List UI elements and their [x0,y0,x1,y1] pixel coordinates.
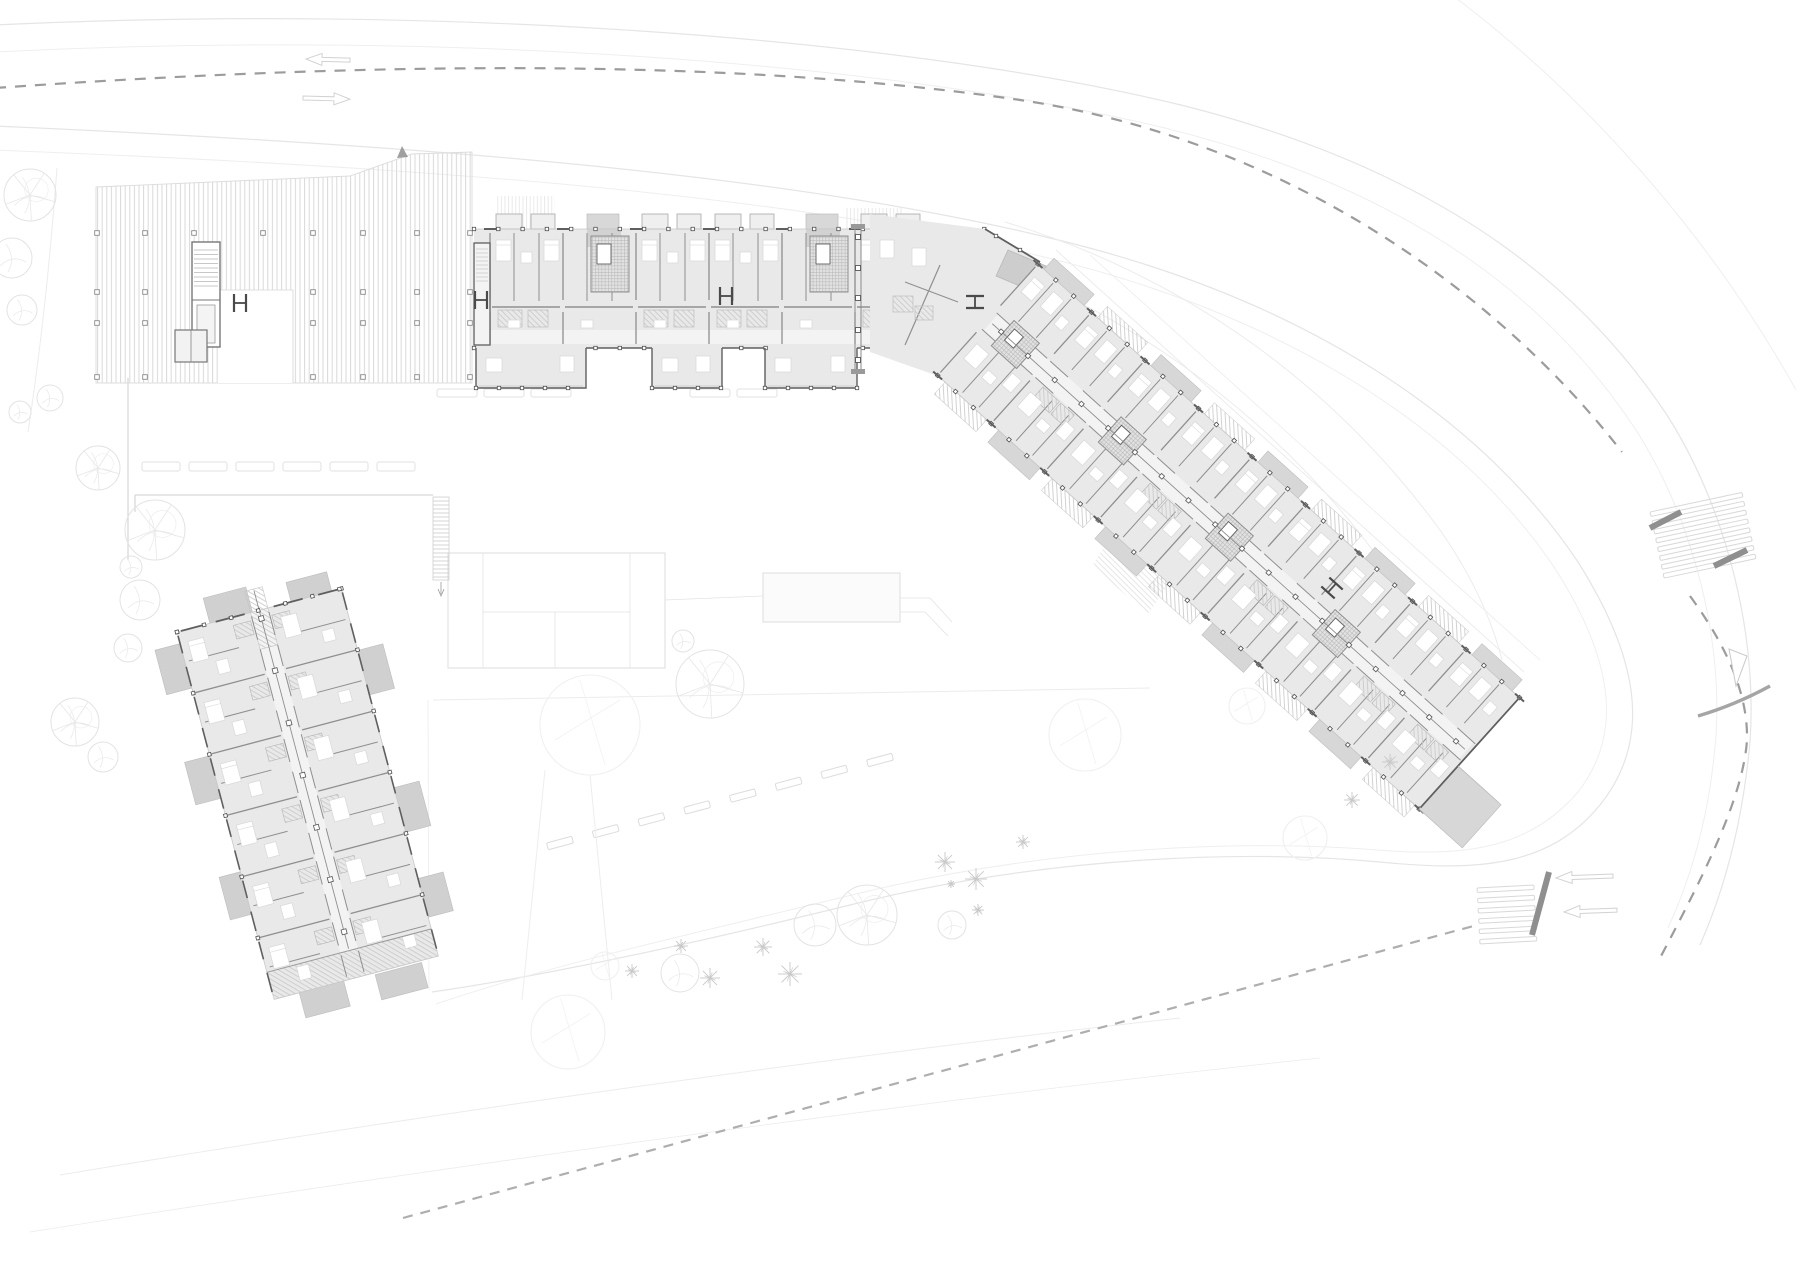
balcony [496,214,522,229]
terrain-line [60,1018,1180,1175]
column-pier [667,227,670,230]
roof-drain-marker [397,146,408,158]
furniture [880,240,894,258]
shrub [965,868,987,890]
drawing-shape [17,404,20,419]
garden-path [665,596,763,600]
colonnade-pier [856,328,861,333]
pergola-column [361,321,366,326]
furniture [544,240,559,261]
balcony [642,214,668,229]
column-pier [283,601,287,605]
parking-bay [690,389,730,397]
column-pier [740,346,743,349]
column-pier [566,386,569,389]
column-pier [594,346,597,349]
column-pier [642,346,645,349]
tree-branch [710,655,729,684]
column-pier [372,709,376,713]
tree-branch [678,684,710,696]
drawing-shape [124,567,138,571]
shrub [754,938,772,956]
pergola-column [415,375,420,380]
column-pier [474,386,477,389]
tree-branch [689,658,710,684]
tree-branch [710,684,743,693]
column-pier [207,752,211,756]
tree-faint [1229,688,1265,724]
site-plan-page [0,0,1800,1273]
landscape-faint [522,675,1327,1069]
zebra-stripe [1479,916,1536,923]
shrub [947,880,955,888]
drawing-shape [782,966,790,974]
tree [0,238,32,278]
pergola-column [361,375,366,380]
zebra-crossing [1650,492,1756,578]
balcony [750,214,774,229]
traffic-direction-arrow [306,53,350,66]
spine-pier [313,824,319,830]
column-pier [715,227,718,230]
furniture [521,252,532,263]
terrace-deck [763,573,900,622]
parking-bay [867,753,894,766]
column-pier [594,227,597,230]
column-pier [175,630,179,634]
shrub [674,939,688,953]
pergola-column [95,290,100,295]
drawing-shape [821,765,848,778]
spine-pier [300,772,306,778]
tree-branch [98,468,119,474]
column-pier [618,227,621,230]
terrain-line [433,688,1150,700]
tree-branch [848,892,867,915]
furniture [496,240,511,261]
drawing-shape [134,586,140,614]
zebra-stripe [1478,895,1535,902]
column-pier [256,608,260,612]
drawing-shape [669,974,694,981]
balcony [531,214,555,229]
furniture [662,358,678,372]
furniture [370,812,385,827]
sports-court [448,553,665,668]
column-pier [240,875,244,879]
shrub [1344,792,1360,808]
column-pier [355,648,359,652]
shrub [1382,754,1398,770]
column-pier [388,770,392,774]
furniture [508,320,520,328]
shrub [625,964,639,978]
pergola-column [311,321,316,326]
furniture [740,252,751,263]
pergola-canopy [95,146,473,383]
pergola-column [468,375,473,380]
pergola-column [311,290,316,295]
spine-pier [327,876,333,882]
drawing-shape [137,531,176,542]
site-plan-canvas [0,0,1800,1273]
parking-bay [142,462,180,471]
tree-branch [14,175,30,195]
garden-path [900,598,952,622]
parking-bay [236,462,274,471]
pergola-column [468,290,473,295]
drawing-shape [790,974,798,982]
pergola-column [95,231,100,236]
tree-faint [591,952,619,980]
column-pier [256,936,260,940]
tree-branch [30,173,44,195]
parking-bay [189,462,227,471]
column-pier [740,227,743,230]
furniture [775,358,791,372]
parking-bay [737,389,777,397]
drawing-shape [782,974,790,982]
zebra-stripe [1480,936,1537,943]
drawing-shape [99,747,103,768]
elevator [597,244,611,264]
pergola-column [192,231,197,236]
furniture [386,873,401,888]
column-pier [861,346,864,349]
colonnade-pier [856,358,861,363]
furniture [690,240,705,261]
column-pier [813,227,816,230]
pergola-opening [218,290,293,383]
furniture [715,240,730,261]
pergola-column [468,231,473,236]
drawing-shape [18,300,22,321]
drawing-shape [306,53,350,66]
tree-faint [1283,816,1327,860]
tree-faint [1049,699,1121,771]
tree-branch [867,915,896,923]
column-pier [191,691,195,695]
shrub [1016,835,1030,849]
tree-branch [155,505,171,530]
furniture [338,689,353,704]
drawing-shape [14,196,48,205]
column-pier [855,386,858,389]
traffic-direction-arrow [1556,870,1613,884]
zebra-stripe [1478,906,1535,913]
tree [794,904,836,946]
balcony [715,214,741,229]
drawing-shape [547,836,574,849]
tree-branch [60,703,75,722]
tree-branch [75,722,98,728]
road-centerline-dashed [1660,596,1747,958]
stair-treads [476,248,488,282]
column-pier [832,386,835,389]
balcony [677,214,701,229]
drawing-shape [128,559,131,574]
garden-stairs [433,497,449,580]
tree-branch [136,507,155,530]
furniture [667,252,678,263]
bathroom [893,296,913,312]
drawing-shape [802,926,829,934]
parking-bay-row [547,753,894,849]
column-pier [543,386,546,389]
pergola-column [311,375,316,380]
tree-branch [98,450,110,468]
drawing-shape [42,399,59,404]
furniture [642,240,657,261]
garden-path [900,612,948,636]
column-pier [837,227,840,230]
elevator [816,244,830,264]
drawing-shape [684,801,711,814]
colonnade-cap [851,224,865,229]
pergola-column [95,375,100,380]
drawing-shape [13,412,27,416]
furniture [912,248,926,266]
drawing-shape [676,641,690,645]
column-pier [786,386,789,389]
column-pier [642,227,645,230]
drawing-shape [674,960,679,987]
column-pier [570,227,573,230]
parking-bay [638,813,665,826]
furniture [696,356,710,372]
column-pier [497,227,500,230]
column-pier [229,616,233,620]
pergola-column [361,290,366,295]
furniture [354,750,369,765]
furniture [654,320,666,328]
drawing-shape [968,871,976,879]
furniture [727,320,739,328]
tree-branch [867,915,869,945]
tree-branch [84,451,98,468]
tree-branch [30,195,31,221]
pergola-column [311,231,316,236]
column-pier [618,346,621,349]
spine-pier [286,720,292,726]
tree-branch [75,702,88,722]
zebra-crossing [1477,885,1537,944]
drawing-shape [0,259,26,266]
furniture [486,358,502,372]
tree-branch [6,195,30,204]
furniture [800,320,812,328]
parking-bay [775,777,802,790]
pergola-column [143,375,148,380]
drawing-shape [120,649,138,654]
shrub [972,904,984,916]
tree-branch [98,468,99,490]
colonnade-pier [856,266,861,271]
pergola-column [143,290,148,295]
traffic-direction-arrow [303,92,350,105]
traffic-direction-arrow [1564,904,1617,918]
colonnade-pier [856,235,861,240]
pergola-column [468,321,473,326]
drawing-shape [13,311,33,316]
column-pier [223,814,227,818]
tree-branch [127,530,155,541]
drawing-shape [849,916,888,927]
column-pier [337,587,341,591]
drawing-shape [976,879,984,887]
column-pier [719,386,722,389]
parking-bay [437,389,477,397]
pergola-column [415,290,420,295]
tree-branch [53,722,75,731]
shrub [700,968,720,988]
pergola-column [361,231,366,236]
zebra-stripe [1477,885,1534,892]
column-pier [202,623,206,627]
parking-bay [377,462,415,471]
parking-bay [330,462,368,471]
spine-pier [341,929,347,935]
drawing-shape [680,633,683,648]
parking-bay [283,462,321,471]
tree-branch [155,530,157,560]
column-pier [691,227,694,230]
zebra-stripe [1479,926,1536,933]
column-pier [310,594,314,598]
drawing-shape [6,244,12,272]
column-pier [521,227,524,230]
spine-pier [272,668,278,674]
pergola-column [95,321,100,326]
column-pier [545,227,548,230]
stair-direction-arrow [438,582,444,596]
tree-branch [867,890,883,915]
column-pier [696,386,699,389]
column-pier [673,386,676,389]
drawing-shape [867,753,894,766]
tree-branch [155,530,184,538]
drawing-shape [1556,870,1613,884]
furniture [581,320,593,328]
terrain-line [30,1058,1320,1232]
pergola-column [143,231,148,236]
colonnade-cap [851,369,865,374]
tree [661,954,699,992]
drawing-shape [1564,904,1617,918]
drawing-shape [775,777,802,790]
stop-bar [1532,872,1549,935]
drawing-shape [94,758,114,763]
column-pier [994,234,997,237]
column-pier [764,227,767,230]
corridor-spine-line [992,324,1465,750]
furniture [322,628,337,643]
drawing-shape [303,92,350,105]
column-pier [420,892,424,896]
drawing-shape [46,389,50,407]
tree-branch [710,684,712,718]
spine-pier [258,615,264,621]
shrub [935,852,955,872]
pergola-column [415,321,420,326]
pergola-column [143,321,148,326]
outer-verge [1452,0,1796,390]
entry-recess [587,214,619,229]
pergola-column [261,231,266,236]
tree [120,580,160,620]
furniture [831,356,845,372]
bathroom [747,310,767,327]
column-pier [404,831,408,835]
bathroom [915,306,933,320]
shrub [778,962,802,986]
parking-bay [484,389,524,397]
drawing-shape [944,926,962,931]
parking-bay [729,789,756,802]
path-fork-line [522,770,545,1000]
parking-bay [821,765,848,778]
drawing-shape [638,813,665,826]
colonnade-pier [856,296,861,301]
tree-faint [531,995,605,1069]
column-pier [1018,248,1021,251]
parking-bay [547,836,574,849]
curb-edge [1698,686,1770,716]
tree-faint [540,675,640,775]
column-pier [763,386,766,389]
tree-branch [30,195,55,202]
furniture [763,240,778,261]
pergola-column [415,231,420,236]
drawing-shape [124,638,128,658]
bathroom [674,310,694,327]
building-south-tower [145,557,470,1033]
parking-bay [531,389,571,397]
column-pier [497,386,500,389]
drawing-shape [61,723,92,732]
drawing-shape [128,601,154,608]
column-pier [472,346,475,349]
drawing-shape [729,789,756,802]
column-pier [788,227,791,230]
column-pier [520,386,523,389]
furniture [560,356,574,372]
column-pier [809,386,812,389]
column-pier [650,386,653,389]
parking-bay [684,801,711,814]
drawing-shape [948,915,952,935]
tree-branch [75,722,76,746]
bathroom [528,310,548,327]
column-pier [472,227,475,230]
tree-branch [839,915,867,926]
entry-recess [806,214,838,229]
drawing-shape [790,966,798,974]
